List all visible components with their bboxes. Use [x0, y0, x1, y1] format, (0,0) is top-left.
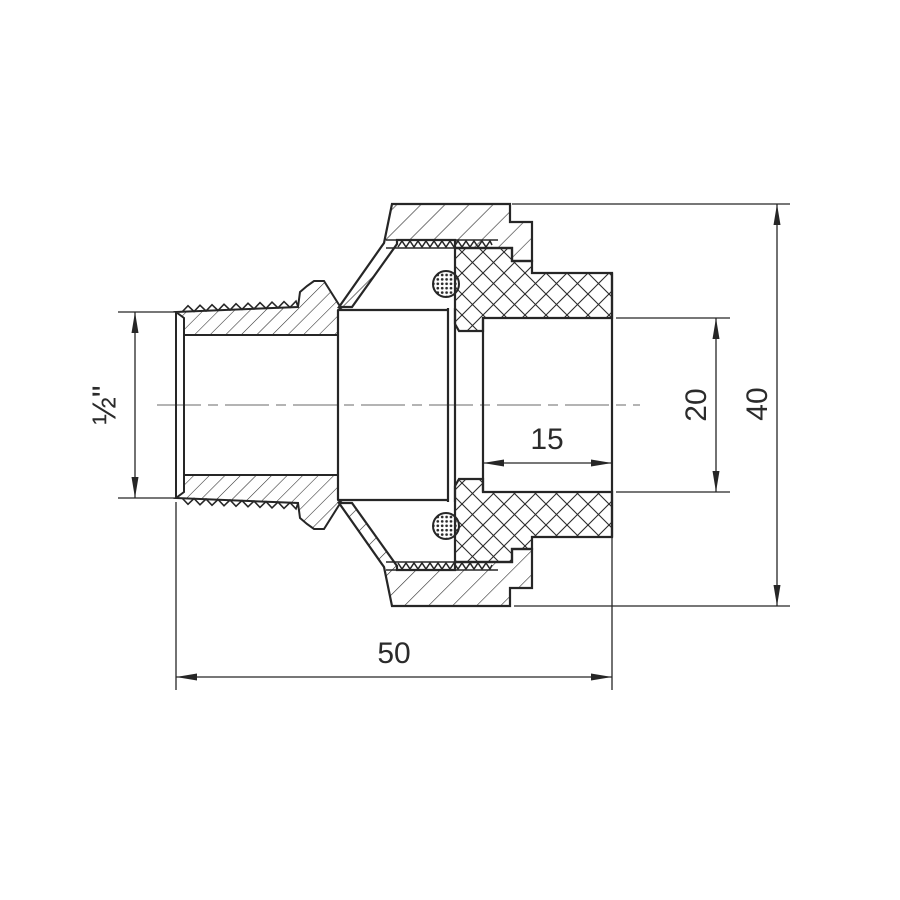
- o-ring-top: [433, 271, 459, 297]
- o-ring-bottom: [433, 513, 459, 539]
- dim-label-thread-size: ½": [86, 385, 123, 424]
- dim-label-socket-depth: 15: [530, 423, 563, 456]
- dim-label-overall-height: 40: [741, 387, 774, 420]
- dim-label-overall-length: 50: [377, 637, 410, 670]
- dim-label-socket-diameter: 20: [680, 388, 713, 421]
- union-fitting-drawing: ½" 20 40 15 50: [0, 0, 900, 900]
- technical-drawing-page: ½" 20 40 15 50: [0, 0, 900, 900]
